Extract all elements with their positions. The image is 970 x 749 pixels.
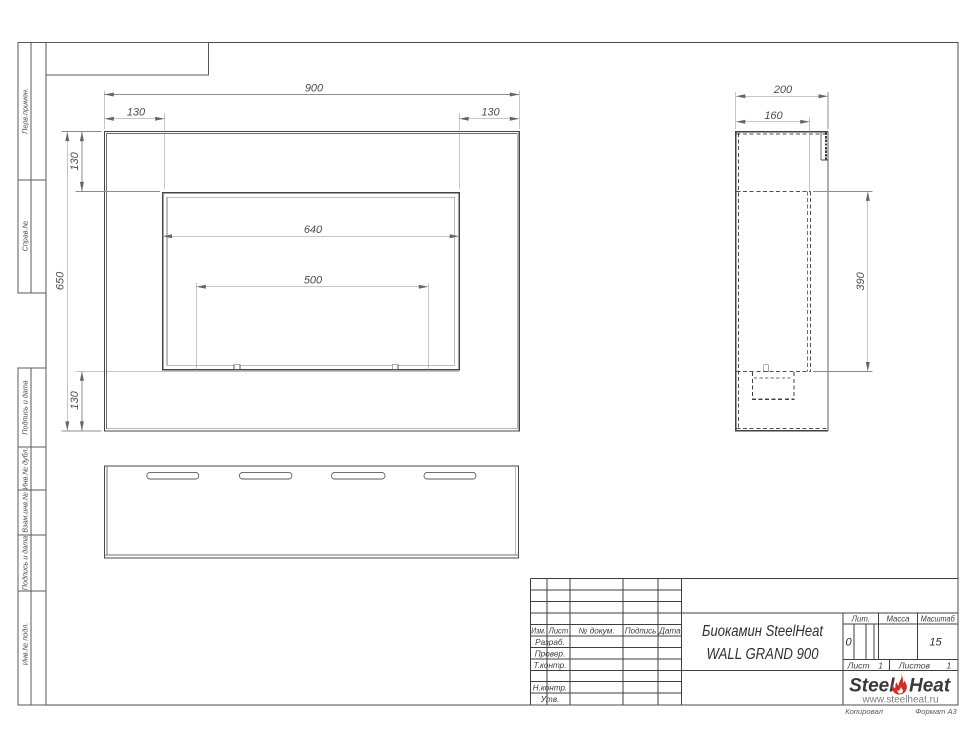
svg-text:Копировал: Копировал <box>845 707 883 716</box>
svg-text:Формат А3: Формат А3 <box>915 707 957 716</box>
svg-text:650: 650 <box>55 271 67 290</box>
svg-text:15: 15 <box>929 637 942 649</box>
svg-text:200: 200 <box>773 84 793 96</box>
svg-text:640: 640 <box>304 224 323 236</box>
svg-text:1: 1 <box>947 660 952 670</box>
svg-text:Справ.№: Справ.№ <box>21 220 30 251</box>
svg-text:Утв.: Утв. <box>540 695 560 704</box>
svg-text:www.steelheat.ru: www.steelheat.ru <box>861 695 938 706</box>
svg-text:Инв.№ дубл.: Инв.№ дубл. <box>21 447 30 489</box>
svg-text:Взам.инв.№: Взам.инв.№ <box>21 492 30 533</box>
svg-text:0: 0 <box>845 637 852 649</box>
svg-text:Heat: Heat <box>909 676 951 697</box>
svg-text:900: 900 <box>305 83 324 95</box>
svg-text:130: 130 <box>481 107 500 119</box>
svg-text:Лит.: Лит. <box>851 615 870 624</box>
svg-text:Подпись и дата: Подпись и дата <box>21 536 30 590</box>
svg-text:Масса: Масса <box>886 615 910 624</box>
svg-text:Подпись: Подпись <box>625 626 657 635</box>
svg-text:Дата: Дата <box>658 626 681 635</box>
svg-text:130: 130 <box>69 151 81 170</box>
svg-text:130: 130 <box>69 390 81 409</box>
svg-text:Т.контр.: Т.контр. <box>533 661 566 670</box>
svg-text:Листов: Листов <box>898 660 931 670</box>
svg-text:160: 160 <box>764 110 783 122</box>
svg-text:500: 500 <box>304 275 323 287</box>
svg-text:Инв.№ подл.: Инв.№ подл. <box>21 623 30 666</box>
svg-text:Изм.: Изм. <box>531 626 546 635</box>
svg-text:Н.контр.: Н.контр. <box>533 684 568 693</box>
svg-text:Масштаб: Масштаб <box>921 615 956 624</box>
svg-text:Биокамин SteelHeat: Биокамин SteelHeat <box>702 623 823 640</box>
svg-text:Разраб.: Разраб. <box>535 638 565 647</box>
svg-text:№ докум.: № докум. <box>579 626 615 635</box>
svg-text:Лист: Лист <box>847 660 870 670</box>
svg-text:Подпись и дата: Подпись и дата <box>21 380 30 434</box>
svg-text:Провер.: Провер. <box>535 649 566 658</box>
svg-text:Перв.примен.: Перв.примен. <box>21 88 30 134</box>
svg-text:WALL GRAND 900: WALL GRAND 900 <box>707 646 819 663</box>
svg-text:130: 130 <box>127 107 146 119</box>
svg-text:Лист: Лист <box>548 626 569 635</box>
svg-text:1: 1 <box>878 660 883 670</box>
svg-text:390: 390 <box>855 271 867 290</box>
svg-text:Steel: Steel <box>849 676 895 697</box>
